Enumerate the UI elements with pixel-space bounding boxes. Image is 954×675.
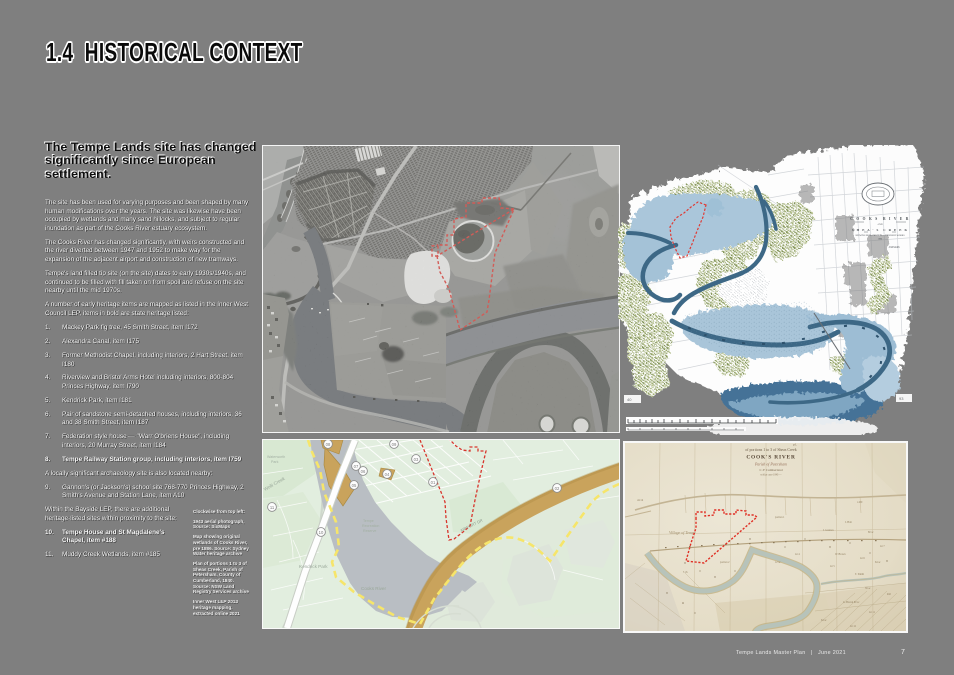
svg-text:Recreation: Recreation [362,524,379,528]
svg-text:05: 05 [352,483,357,488]
svg-text:R.P.: R.P. [887,593,892,596]
svg-text:12 ac: 12 ac [775,561,781,564]
svg-text:Kendrick Park: Kendrick Park [299,564,328,569]
svg-text:sold pr acre 1840 —: sold pr acre 1840 — [760,474,782,477]
svg-text:04: 04 [385,472,390,477]
svg-text:lot 4: lot 4 [795,553,800,556]
svg-text:11: 11 [270,505,275,510]
svg-text:03: 03 [414,457,419,462]
svg-text:Parish of Petersham: Parish of Petersham [754,463,787,467]
svg-text:80 ac: 80 ac [868,531,874,534]
svg-text:J. Holt: J. Holt [845,521,852,524]
svg-text:01: 01 [431,480,436,485]
svg-text:64 ac: 64 ac [821,619,827,622]
svg-text:93: 93 [899,396,904,401]
svg-text:AND: AND [877,223,882,226]
svg-text:W. Brown: W. Brown [835,553,846,556]
svg-text:1886: 1886 [878,239,882,241]
svg-text:SHEWING RECLAMATION — PROPOSED: SHEWING RECLAMATION — PROPOSED WORKS [855,234,905,237]
svg-text:10: 10 [319,530,324,535]
svg-text:J. Gannon: J. Gannon [823,529,834,532]
svg-text:Reserve: Reserve [363,529,376,533]
svg-text:64 ac: 64 ac [875,561,881,564]
svg-text:Village of Tempe: Village of Tempe [669,530,696,535]
svg-text:portion 2: portion 2 [720,561,730,564]
svg-text:pl.: pl. [793,443,797,447]
svg-text:T. Smith: T. Smith [855,573,865,576]
svg-text:of portions 1 to 3 of Sheas Cr: of portions 1 to 3 of Sheas Creek [745,448,796,452]
svg-text:08: 08 [326,442,331,447]
svg-text:portion 1: portion 1 [775,516,785,519]
svg-text:lot 7: lot 7 [880,545,885,548]
svg-text:C O O K S R I V E R: C O O K S R I V E R [850,217,909,221]
svg-text:Tempe: Tempe [363,519,374,523]
svg-text:J.M.Smith: J.M.Smith [888,246,900,249]
svg-text:lot 6: lot 6 [860,557,865,560]
svg-text:06: 06 [361,469,366,474]
svg-text:lot 11: lot 11 [869,611,876,614]
svg-text:C.Y Cumberland: C.Y Cumberland [759,468,782,472]
svg-text:old rd: old rd [637,499,644,502]
svg-text:G. Brown 60 ac: G. Brown 60 ac [843,601,860,604]
svg-text:09: 09 [392,442,397,447]
svg-text:r.100: r.100 [857,501,863,504]
svg-text:lot 5: lot 5 [830,565,835,568]
svg-text:02: 02 [555,486,560,491]
svg-text:3 ch: 3 ch [683,571,688,574]
svg-text:38 ac: 38 ac [865,587,871,590]
svg-text:Cooks River: Cooks River [361,586,386,591]
svg-text:COOK'S RIVER: COOK'S RIVER [746,455,795,461]
svg-text:lot 12: lot 12 [850,625,857,628]
svg-text:07: 07 [354,464,359,469]
svg-text:40: 40 [627,397,632,402]
svg-text:Waterworth: Waterworth [267,455,285,459]
svg-text:S H E A ' S C R E E K: S H E A ' S C R E E K [852,228,908,232]
svg-text:Park: Park [271,460,279,464]
